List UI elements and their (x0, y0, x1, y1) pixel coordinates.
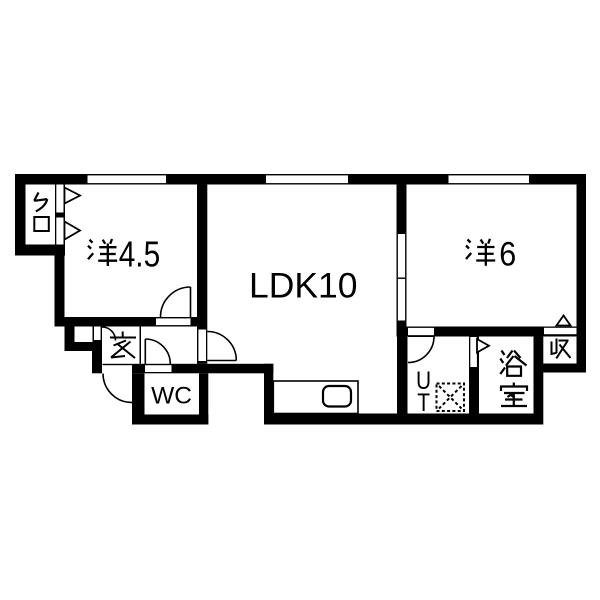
svg-text:4.5: 4.5 (119, 234, 161, 275)
svg-text:WC: WC (151, 383, 192, 410)
svg-text:LDK10: LDK10 (249, 266, 358, 306)
svg-text:6: 6 (499, 236, 516, 274)
svg-text:T: T (417, 389, 430, 417)
